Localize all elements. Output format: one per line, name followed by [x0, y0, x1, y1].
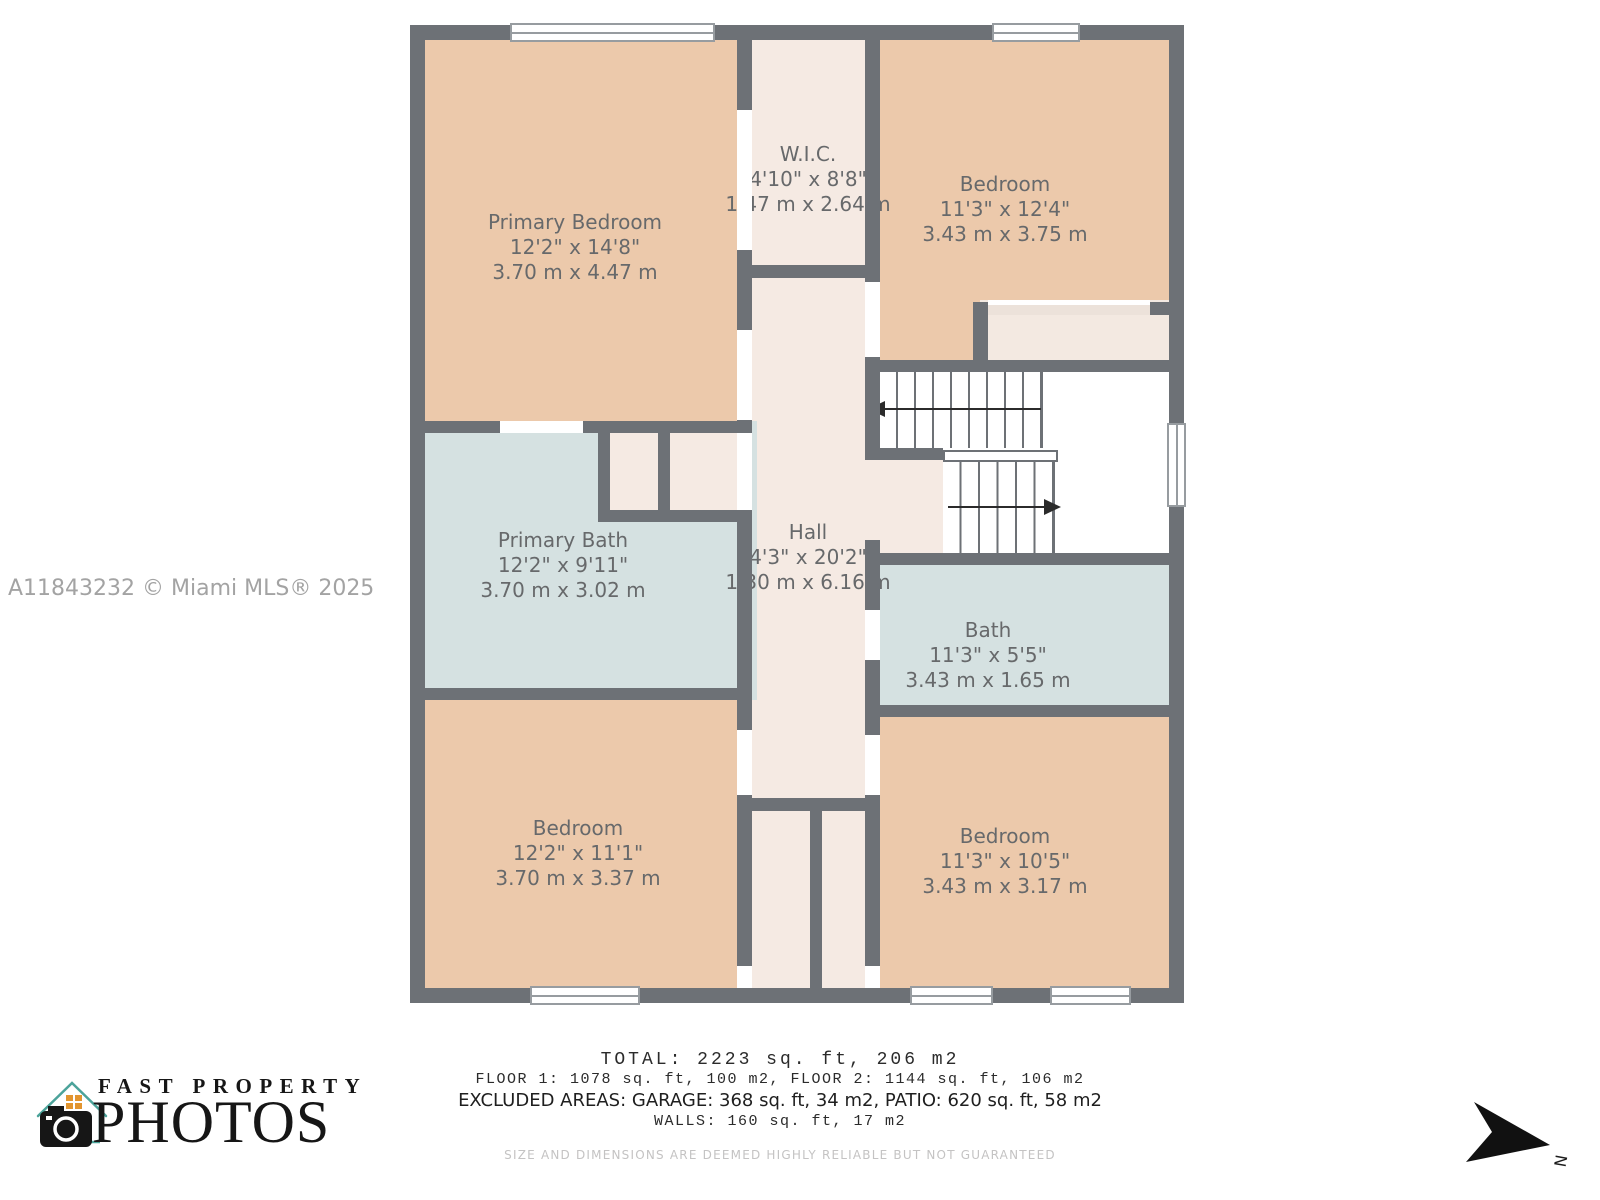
room-dims-metric: 3.43 m x 3.75 m: [885, 222, 1125, 247]
wall-segment: [737, 250, 752, 330]
room-name: Bedroom: [458, 816, 698, 841]
excluded-areas-text: EXCLUDED AREAS: GARAGE: 368 sq. ft, 34 m…: [380, 1090, 1180, 1111]
room-dims-metric: 1.30 m x 6.16 m: [688, 570, 928, 595]
wall-alcove-mid: [658, 421, 670, 522]
wall-segment: [737, 795, 752, 966]
wall-alcove-bottom: [598, 510, 752, 522]
room-dims-imperial: 11'3" x 12'4": [885, 197, 1125, 222]
fast-property-photos-logo: FAST PROPERTY PHOTOS: [30, 1062, 360, 1162]
stairs-landing: [943, 450, 1058, 462]
wall-bath2-bottom: [865, 705, 1169, 717]
door-gap-bath-alcove: [737, 432, 752, 510]
door-gap-bedroom-top-right: [865, 282, 880, 357]
room-name: Primary Bath: [443, 528, 683, 553]
total-area-text: TOTAL: 2223 sq. ft, 206 m2: [380, 1050, 1180, 1070]
room-dims-metric: 3.70 m x 3.37 m: [458, 866, 698, 891]
wall-segment: [865, 717, 880, 735]
room-dims-imperial: 11'3" x 10'5": [885, 849, 1125, 874]
wall-closet-divider: [810, 811, 822, 988]
wall-segment: [865, 795, 880, 966]
room-dims-imperial: 12'2" x 11'1": [458, 841, 698, 866]
room-dims-imperial: 11'3" x 5'5": [868, 643, 1108, 668]
room-dims-metric: 3.70 m x 4.47 m: [455, 260, 695, 285]
wall-bath-top-left: [410, 421, 500, 433]
wall-segment: [737, 40, 752, 110]
window-bedroom-bottom-right-1: [910, 986, 993, 1005]
area-summary: TOTAL: 2223 sq. ft, 206 m2 FLOOR 1: 1078…: [380, 1050, 1180, 1162]
wall-alcove-left: [598, 421, 610, 522]
wall-segment: [737, 700, 752, 730]
wall-outer-right: [1169, 25, 1184, 1003]
hall-closets-floor: [737, 798, 880, 1003]
wall-segment: [865, 565, 880, 610]
room-name: W.I.C.: [688, 142, 928, 167]
window-bedroom-top-right: [992, 23, 1080, 42]
primary-bedroom-label: Primary Bedroom 12'2" x 14'8" 3.70 m x 4…: [455, 210, 695, 285]
window-stairwell-right: [1167, 423, 1186, 507]
room-name: Primary Bedroom: [455, 210, 695, 235]
bedroom-top-right-label: Bedroom 11'3" x 12'4" 3.43 m x 3.75 m: [885, 172, 1125, 247]
door-gap-bedroom-bottom-left: [737, 730, 752, 795]
wall-vestibule-top: [865, 448, 943, 460]
north-arrow-glyph: [1466, 1102, 1550, 1162]
stairs-upper-flight: [880, 372, 1043, 448]
closet-sliding-door: [988, 305, 1150, 315]
room-dims-imperial: 12'2" x 14'8": [455, 235, 695, 260]
wall-bath2-top: [865, 553, 1169, 565]
door-gap-primary-bath: [500, 421, 583, 433]
wall-wic-bottom: [737, 265, 880, 278]
room-dims-metric: 3.43 m x 3.17 m: [885, 874, 1125, 899]
stairs-down-arrow-line: [948, 506, 1048, 508]
door-gap-closet-left: [737, 966, 752, 988]
wall-segment: [865, 40, 880, 282]
north-arrow: N: [1462, 1098, 1572, 1173]
wall-segment: [865, 660, 880, 705]
wall-segment: [737, 510, 752, 700]
stairs-down-arrowhead: [1044, 499, 1061, 515]
bedroom-bottom-left-label: Bedroom 12'2" x 11'1" 3.70 m x 3.37 m: [458, 816, 698, 891]
wall-stairs-top: [865, 360, 1169, 372]
primary-bath-label: Primary Bath 12'2" x 9'11" 3.70 m x 3.02…: [443, 528, 683, 603]
wall-bath-bottom: [410, 688, 752, 700]
door-gap-bath: [865, 610, 880, 660]
bedroom-bottom-right-label: Bedroom 11'3" x 10'5" 3.43 m x 3.17 m: [885, 824, 1125, 899]
wall-closet-stub: [1150, 302, 1169, 315]
stairs-up-arrow-line: [878, 408, 1041, 410]
room-name: Hall: [688, 520, 928, 545]
wall-outer-left: [410, 25, 425, 1003]
wall-segment: [865, 540, 880, 553]
door-gap-primary-bedroom: [737, 330, 752, 420]
door-gap-closet-right: [865, 966, 880, 988]
room-name: Bedroom: [885, 824, 1125, 849]
wall-hall-bottom: [737, 798, 880, 811]
door-gap-wic: [737, 110, 752, 250]
mls-watermark: A11843232 © Miami MLS® 2025: [8, 576, 374, 601]
disclaimer-text: SIZE AND DIMENSIONS ARE DEEMED HIGHLY RE…: [380, 1148, 1180, 1162]
bath-alcove-left-floor: [610, 421, 658, 522]
walls-area-text: WALLS: 160 sq. ft, 17 m2: [380, 1113, 1180, 1130]
window-bedroom-bottom-left: [530, 986, 640, 1005]
floorplan-page: Primary Bedroom 12'2" x 14'8" 3.70 m x 4…: [0, 0, 1600, 1200]
bath-label: Bath 11'3" x 5'5" 3.43 m x 1.65 m: [868, 618, 1108, 693]
wall-bath-top-right: [583, 421, 752, 433]
room-name: Bath: [868, 618, 1108, 643]
window-bedroom-bottom-right-2: [1050, 986, 1131, 1005]
room-dims-imperial: 12'2" x 9'11": [443, 553, 683, 578]
logo-line2: PHOTOS: [92, 1088, 330, 1157]
room-name: Bedroom: [885, 172, 1125, 197]
window-primary-bedroom: [510, 23, 715, 42]
floor-areas-text: FLOOR 1: 1078 sq. ft, 100 m2, FLOOR 2: 1…: [380, 1071, 1180, 1088]
north-label: N: [1550, 1153, 1571, 1168]
door-gap-bedroom-bottom-right: [865, 735, 880, 795]
room-dims-metric: 3.70 m x 3.02 m: [443, 578, 683, 603]
room-dims-metric: 3.43 m x 1.65 m: [868, 668, 1108, 693]
